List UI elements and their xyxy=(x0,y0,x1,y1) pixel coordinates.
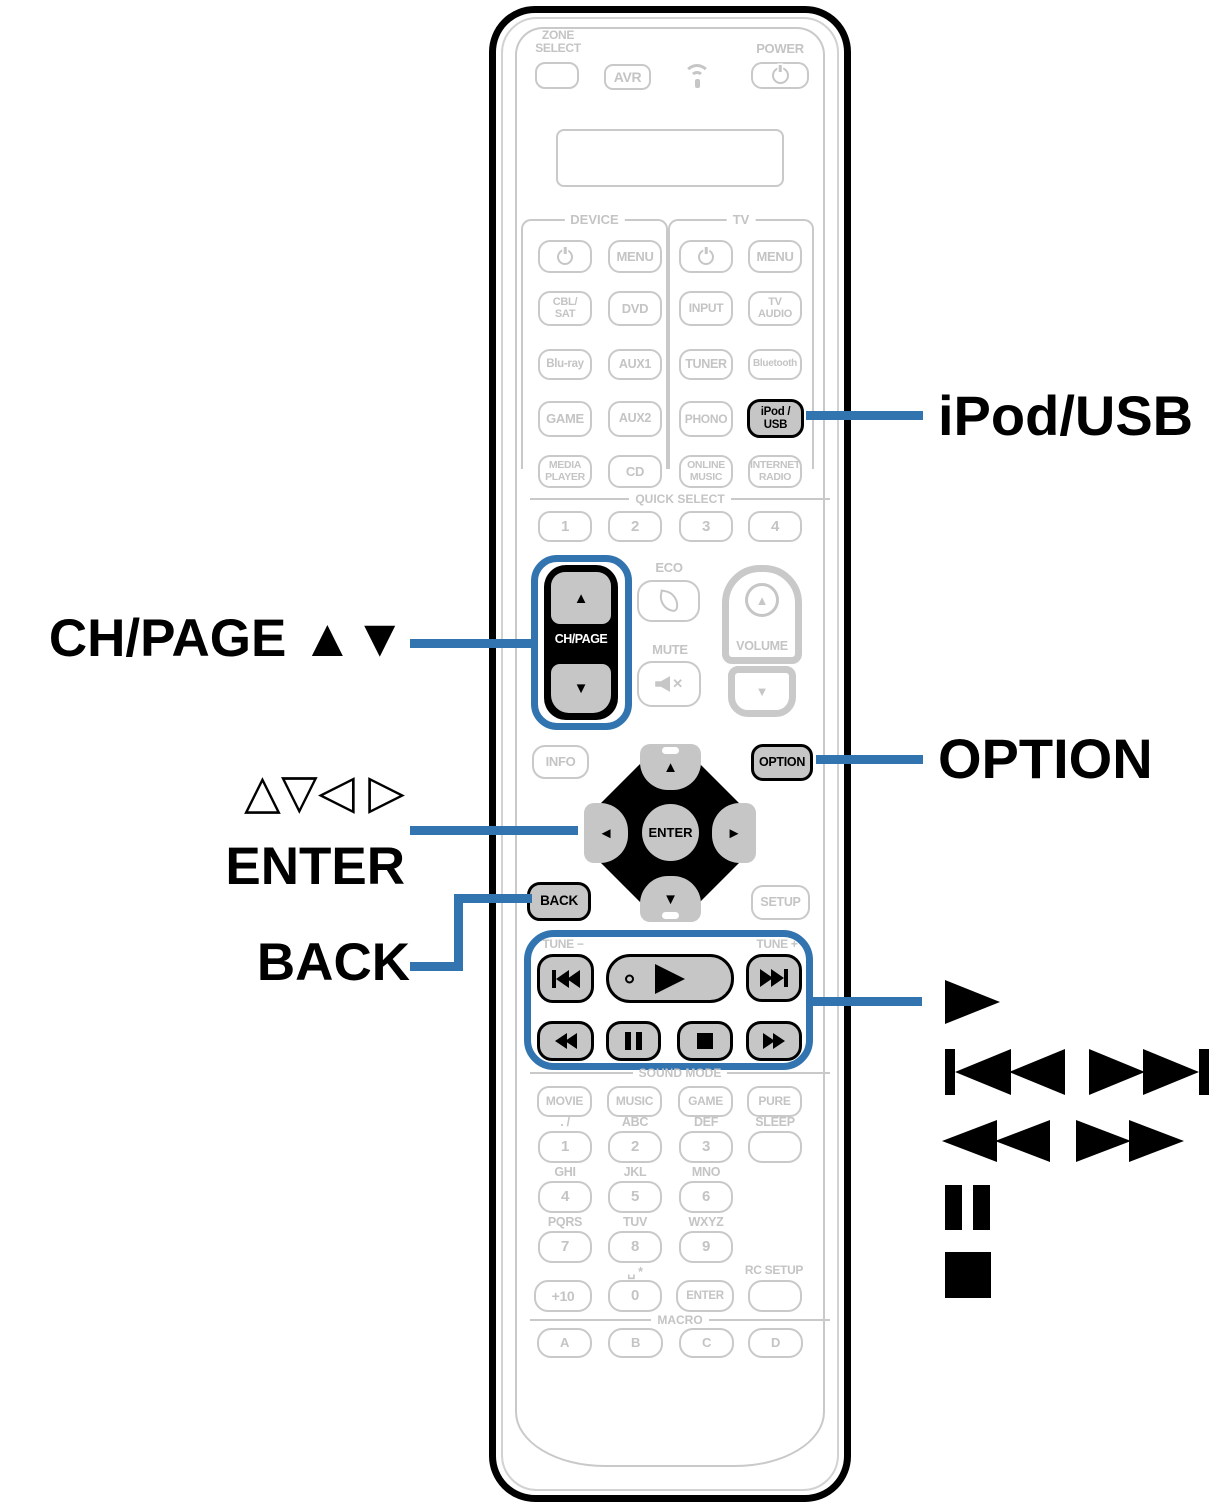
plus10-button[interactable]: +10 xyxy=(534,1280,592,1312)
avr-button[interactable]: AVR xyxy=(604,64,651,90)
mute-button[interactable]: ✕ xyxy=(637,661,701,707)
device-menu-button[interactable]: MENU xyxy=(608,240,662,273)
digit-8-button[interactable]: 8 xyxy=(608,1231,662,1263)
cd-button[interactable]: CD xyxy=(608,455,662,488)
option-button[interactable]: OPTION xyxy=(751,744,813,781)
play-callout-icon xyxy=(945,980,1000,1024)
ipod-usb-callout-line xyxy=(806,411,923,420)
cursor-right-button[interactable]: ► xyxy=(712,803,756,863)
rewind-fast-forward-callout-icons xyxy=(942,1120,1184,1162)
keypad-def-label: DEF xyxy=(679,1116,733,1129)
ch-page-callout-label: CH/PAGE ▲▼ xyxy=(0,608,406,669)
device-power-button[interactable] xyxy=(538,240,592,273)
back-callout-line-h2 xyxy=(454,894,532,903)
display-window xyxy=(556,129,784,187)
digit-6-button[interactable]: 6 xyxy=(679,1181,733,1213)
enter-callout-label: ENTER xyxy=(160,836,405,897)
internet-radio-button[interactable]: INTERNET RADIO xyxy=(748,455,802,488)
play-record-dot-icon xyxy=(625,974,634,983)
digit-2-button[interactable]: 2 xyxy=(608,1131,662,1163)
digit-5-button[interactable]: 5 xyxy=(608,1181,662,1213)
play-button[interactable] xyxy=(606,954,734,1003)
keypad-wxyz-label: WXYZ xyxy=(679,1216,733,1229)
keypad-pqrs-label: PQRS xyxy=(538,1216,592,1229)
back-callout-line-v xyxy=(454,894,463,971)
sound-game-button[interactable]: GAME xyxy=(678,1086,733,1117)
media-player-button[interactable]: MEDIA PLAYER xyxy=(538,455,592,488)
zone-select-label: ZONE SELECT xyxy=(514,29,602,54)
quick-select-label: QUICK SELECT xyxy=(635,492,724,506)
ch-page-up-button[interactable]: ▲ xyxy=(551,572,611,624)
tune-plus-label: TUNE + xyxy=(749,938,805,951)
tuner-button[interactable]: TUNER xyxy=(679,349,733,380)
tv-audio-button[interactable]: TV AUDIO xyxy=(748,291,802,326)
pause-button[interactable] xyxy=(606,1021,661,1061)
sleep-button[interactable] xyxy=(748,1131,802,1163)
sound-mode-label: SOUND MODE xyxy=(639,1066,722,1080)
sleep-label: SLEEP xyxy=(748,1116,802,1129)
keypad-mno-label: MNO xyxy=(679,1166,733,1179)
sound-mode-header: SOUND MODE xyxy=(530,1066,830,1080)
ch-page-callout-line xyxy=(410,639,537,648)
cursor-down-indicator xyxy=(662,912,679,919)
volume-up-button[interactable]: ▲ VOLUME xyxy=(722,565,802,664)
space-asterisk-label: ␣ * xyxy=(608,1266,662,1279)
sound-music-button[interactable]: MUSIC xyxy=(607,1086,662,1117)
digit-4-button[interactable]: 4 xyxy=(538,1181,592,1213)
quick-select-3-button[interactable]: 3 xyxy=(679,511,733,542)
cursor-up-indicator xyxy=(662,747,679,754)
rc-setup-label: RC SETUP xyxy=(738,1264,810,1277)
keypad-jkl-label: JKL xyxy=(608,1166,662,1179)
tune-minus-label: TUNE − xyxy=(535,938,591,951)
power-label: POWER xyxy=(748,42,812,56)
mute-label: MUTE xyxy=(638,643,702,657)
fast-forward-button[interactable] xyxy=(746,1021,802,1061)
input-button[interactable]: INPUT xyxy=(679,291,733,326)
keypad-tuv-label: TUV xyxy=(608,1216,662,1229)
sound-movie-button[interactable]: MOVIE xyxy=(537,1086,592,1117)
volume-up-circle: ▲ xyxy=(745,583,779,617)
pause-icon xyxy=(625,1032,631,1050)
blu-ray-button[interactable]: Blu-ray xyxy=(538,349,592,380)
ipod-usb-callout-label: iPod/USB xyxy=(938,383,1193,448)
game-button[interactable]: GAME xyxy=(538,401,592,437)
aux1-button[interactable]: AUX1 xyxy=(608,349,662,380)
tv-power-button[interactable] xyxy=(679,240,733,273)
eco-leaf-icon xyxy=(657,589,680,612)
enter-num-button[interactable]: ENTER xyxy=(676,1280,734,1312)
cbl-sat-button[interactable]: CBL/ SAT xyxy=(538,291,592,326)
device-power-icon xyxy=(557,249,573,265)
digit-0-button[interactable]: 0 xyxy=(608,1280,662,1312)
power-button[interactable] xyxy=(751,62,809,89)
ipod-usb-button[interactable]: iPod / USB xyxy=(747,399,804,438)
volume-up-icon: ▲ xyxy=(756,593,769,608)
info-button[interactable]: INFO xyxy=(532,745,589,779)
sound-pure-button[interactable]: PURE xyxy=(747,1086,802,1117)
macro-a-button[interactable]: A xyxy=(537,1328,592,1358)
cursor-enter-callout-line xyxy=(410,826,578,835)
option-callout-label: OPTION xyxy=(938,726,1153,791)
digit-9-button[interactable]: 9 xyxy=(679,1231,733,1263)
quick-select-1-button[interactable]: 1 xyxy=(538,511,592,542)
macro-header: MACRO xyxy=(530,1313,830,1327)
skip-back-button[interactable] xyxy=(537,954,594,1003)
cursor-triangles-callout-label: △▽◁ ▷ xyxy=(160,764,405,820)
ch-page-down-button[interactable]: ▼ xyxy=(551,664,611,713)
volume-label: VOLUME xyxy=(729,640,795,653)
keypad-ghi-label: GHI xyxy=(538,1166,592,1179)
remote-control-diagram: ZONE SELECT AVR POWER DEVICE TV MENU MEN… xyxy=(0,0,1223,1510)
power-icon xyxy=(772,67,789,84)
quick-select-header: QUICK SELECT xyxy=(530,492,830,506)
stop-icon xyxy=(697,1033,713,1049)
dvd-button[interactable]: DVD xyxy=(608,291,662,326)
eco-button[interactable] xyxy=(637,580,700,622)
back-button[interactable]: BACK xyxy=(527,882,591,921)
option-callout-line xyxy=(816,755,923,764)
skip-back-forward-callout-icons xyxy=(945,1049,1209,1095)
skip-forward-icon xyxy=(760,969,788,987)
playback-callout-line xyxy=(812,997,922,1006)
mute-x-icon: ✕ xyxy=(672,677,683,691)
volume-down-button[interactable]: ▼ xyxy=(728,666,796,717)
stop-button[interactable] xyxy=(677,1021,733,1061)
volume-down-icon: ▼ xyxy=(756,684,769,699)
online-music-button[interactable]: ONLINE MUSIC xyxy=(679,455,733,488)
setup-button[interactable]: SETUP xyxy=(751,885,810,920)
fast-forward-icon xyxy=(763,1033,785,1049)
wifi-transmit-icon xyxy=(681,61,715,90)
quick-select-4-button[interactable]: 4 xyxy=(748,511,802,542)
stop-callout-icon xyxy=(945,1252,991,1298)
tv-group-label: TV xyxy=(727,212,756,227)
eco-label: ECO xyxy=(638,561,700,575)
macro-label: MACRO xyxy=(657,1313,702,1327)
aux2-button[interactable]: AUX2 xyxy=(608,401,662,437)
keypad-dot-slash-label: . / xyxy=(538,1116,592,1129)
enter-button[interactable]: ENTER xyxy=(642,804,699,861)
digit-1-button[interactable]: 1 xyxy=(538,1131,592,1163)
mute-speaker-icon xyxy=(655,676,670,692)
rewind-icon xyxy=(555,1033,577,1049)
bluetooth-button[interactable]: Bluetooth xyxy=(748,349,802,380)
play-icon xyxy=(655,964,685,994)
macro-d-button[interactable]: D xyxy=(748,1328,803,1358)
macro-c-button[interactable]: C xyxy=(679,1328,734,1358)
rewind-button[interactable] xyxy=(537,1021,594,1061)
ch-page-key-label: CH/PAGE xyxy=(544,632,618,646)
quick-select-2-button[interactable]: 2 xyxy=(608,511,662,542)
device-group-label: DEVICE xyxy=(564,212,624,227)
digit-3-button[interactable]: 3 xyxy=(679,1131,733,1163)
tv-menu-button[interactable]: MENU xyxy=(748,240,802,273)
macro-b-button[interactable]: B xyxy=(608,1328,663,1358)
keypad-abc-label: ABC xyxy=(608,1116,662,1129)
pause-callout-icon xyxy=(945,1185,990,1230)
tv-power-icon xyxy=(698,249,714,265)
digit-7-button[interactable]: 7 xyxy=(538,1231,592,1263)
zone-select-button[interactable] xyxy=(535,62,579,89)
skip-forward-button[interactable] xyxy=(746,954,802,1002)
skip-back-icon xyxy=(552,970,580,988)
back-callout-label: BACK xyxy=(160,932,410,993)
phono-button[interactable]: PHONO xyxy=(679,401,733,437)
rc-setup-button[interactable] xyxy=(748,1280,802,1312)
